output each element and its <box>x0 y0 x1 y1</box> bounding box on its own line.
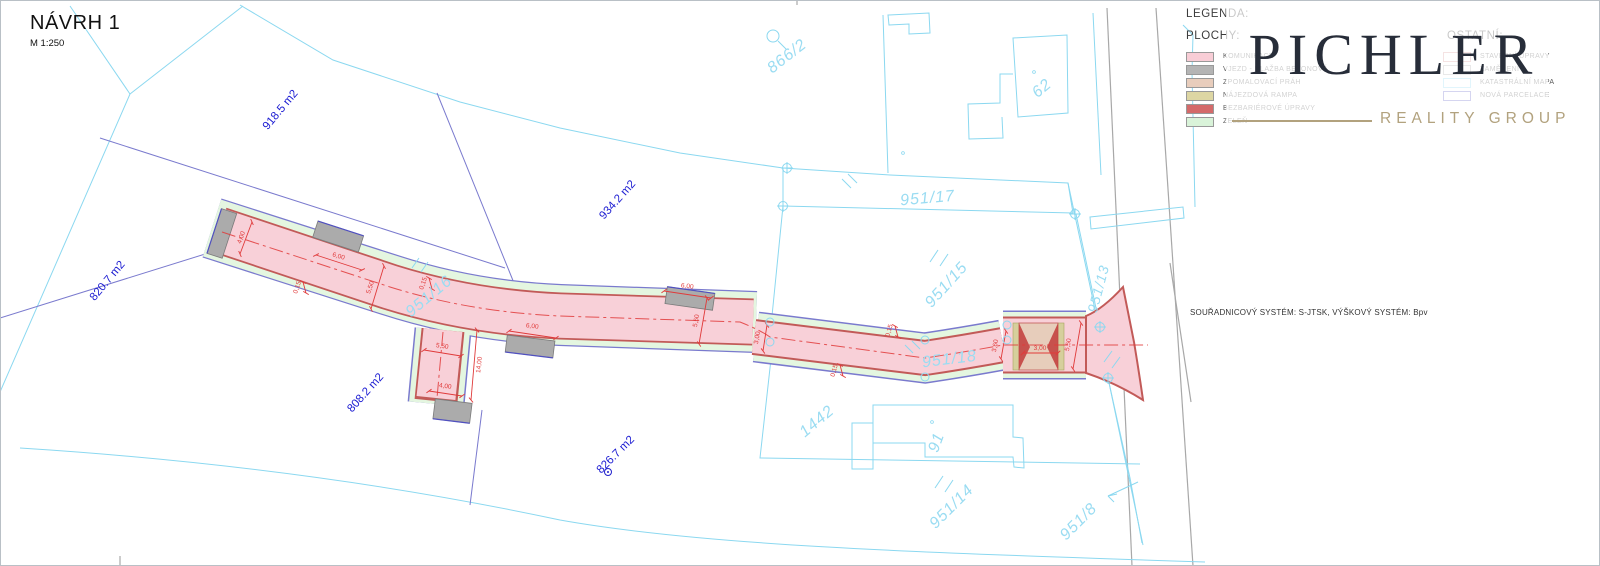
area-label: 820.7 m2 <box>88 259 128 303</box>
existing-road-lines <box>1107 8 1193 566</box>
swatch-prah <box>1186 78 1214 88</box>
swatch-bezbarierove <box>1186 104 1214 114</box>
parcel-label: 91 <box>925 430 948 454</box>
parcel-label: 951/8 <box>1057 500 1101 544</box>
parcel-label: 951/15 <box>922 259 971 311</box>
svg-text:3,00: 3,00 <box>1034 345 1047 352</box>
coordinate-system-note: SOUŘADNICOVÝ SYSTÉM: S-JTSK, VÝŠKOVÝ SYS… <box>1190 308 1428 317</box>
parcel-label: 951/14 <box>926 481 977 532</box>
brand-rule <box>1232 120 1372 122</box>
brand-watermark: PICHLER REALITY GROUP <box>1228 10 1560 100</box>
area-label: 826.7 m2 <box>595 434 637 476</box>
parcel-label: 1442 <box>796 402 837 440</box>
tree-symbol <box>767 30 779 42</box>
swatch-rampa <box>1186 91 1214 101</box>
site-plan-canvas: 4,00 6,00 0,15 5,50 0,15 5,50 4,00 14,00… <box>0 0 1600 566</box>
swatch-vjezd <box>1186 65 1214 75</box>
parcel-label: 951/17 <box>900 188 956 210</box>
swatch-zelen <box>1186 117 1214 127</box>
map-scale: M 1:250 <box>30 38 120 49</box>
brand-subtitle: REALITY GROUP <box>1380 110 1570 128</box>
svg-text:14,00: 14,00 <box>475 356 484 373</box>
area-label: 918.5 m2 <box>261 88 301 132</box>
page-title: NÁVRH 1 <box>30 12 120 35</box>
cadastral-boundaries <box>0 5 1205 562</box>
area-label: 934.2 m2 <box>597 178 638 222</box>
brand-name: PICHLER <box>1228 10 1560 100</box>
title-block: NÁVRH 1 M 1:250 <box>30 12 120 49</box>
parcel-label: 62 <box>1029 76 1055 102</box>
area-label: 808.2 m2 <box>345 371 386 415</box>
swatch-komunikace <box>1186 52 1214 62</box>
